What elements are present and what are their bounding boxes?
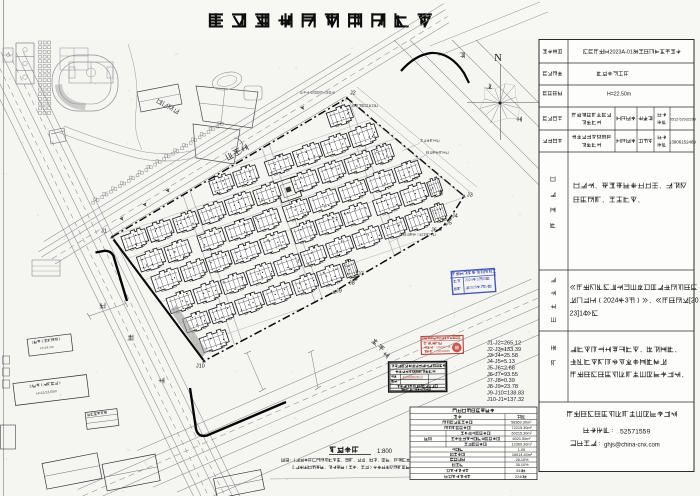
svg-text:J8: J8 [349,281,355,287]
svg-text:J10: J10 [196,364,205,370]
svg-text:13906152489: 13906152489 [669,140,696,145]
svg-text:52571559: 52571559 [620,429,650,436]
svg-text:J3-J4=25.58: J3-J4=25.58 [487,353,518,359]
svg-text:26.10%: 26.10% [516,458,530,462]
svg-text:J9-J10=138.83: J9-J10=138.83 [487,391,524,397]
svg-text:31: 31 [483,277,487,281]
svg-text:16514.40m²: 16514.40m² [512,453,533,457]
svg-text:J8-J9=23.78: J8-J9=23.78 [487,384,518,390]
svg-text:58369.30m²: 58369.30m² [511,421,532,425]
svg-text:14: 14 [485,284,489,288]
svg-text:1: 1 [480,285,482,289]
svg-text:J1: J1 [101,229,107,235]
svg-text:J6: J6 [431,228,437,234]
svg-text:J7: J7 [358,272,364,278]
svg-text:J2: J2 [350,91,356,97]
svg-text:1#: 1# [31,340,35,344]
svg-text:2240: 2240 [515,475,523,479]
svg-text:J6-J7=93.55: J6-J7=93.55 [487,372,518,378]
svg-text:J3: J3 [467,193,473,199]
svg-text:J2-J3=133.39: J2-J3=133.39 [487,347,521,353]
svg-text:20240630: 20240630 [436,349,450,353]
svg-text:H=22.50m: H=22.50m [607,92,631,98]
svg-text:35.10%: 35.10% [516,463,530,467]
svg-text:1:800: 1:800 [377,449,393,455]
svg-text:72215.30m²: 72215.30m² [512,426,533,430]
svg-text:J5: J5 [446,221,452,227]
svg-text:2023A-013: 2023A-013 [610,49,636,55]
svg-text:1.05: 1.05 [518,448,525,452]
svg-text:J4-J5=5.13: J4-J5=5.13 [487,359,515,365]
svg-text:J4: J4 [452,214,458,220]
svg-text:816: 816 [516,469,522,473]
svg-text:J1-J2=265.12: J1-J2=265.12 [487,341,521,347]
svg-text:2.: 2. [292,465,296,470]
svg-text:N: N [494,52,502,64]
svg-text:12: 12 [476,277,480,281]
svg-text:E150002612: E150002612 [403,375,423,379]
svg-text:-: - [309,91,310,95]
svg-text:12360.30m²: 12360.30m² [512,443,533,447]
svg-text:J9: J9 [336,289,342,295]
svg-text:23]14: 23]14 [570,311,587,318]
svg-text:J5-J6=2.68: J5-J6=2.68 [487,366,515,372]
svg-text:J7-J8=0.39: J7-J8=0.39 [487,378,515,384]
svg-text:6021.50m²: 6021.50m² [513,437,532,441]
svg-text:2024: 2024 [465,278,473,283]
svg-text:1.: 1. [293,457,297,462]
svg-text:[20: [20 [689,298,699,305]
svg-text:0512-52932299: 0512-52932299 [670,118,696,122]
svg-text:ghjs@china-cnx.com: ghjs@china-cnx.com [604,443,660,449]
svg-text:2025: 2025 [469,285,477,290]
svg-text:3: 3 [625,298,629,305]
svg-text:60215.30m²: 60215.30m² [512,432,533,436]
svg-text:2024: 2024 [603,298,618,305]
svg-text:J10-J1=137.32: J10-J1=137.32 [487,397,524,403]
